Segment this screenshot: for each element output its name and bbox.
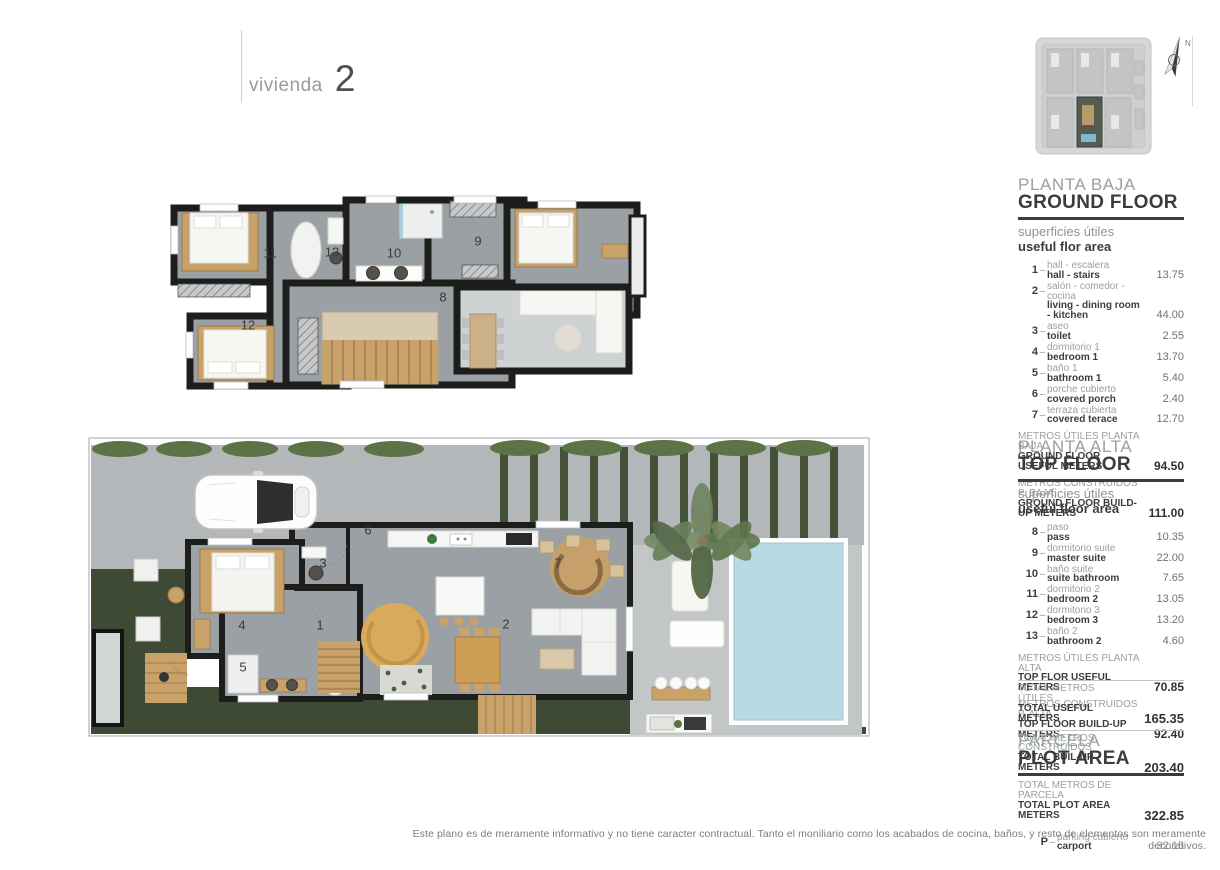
row-dash: – xyxy=(1038,523,1047,543)
balcony xyxy=(630,216,645,296)
row-label-en: bedroom 1 xyxy=(1047,353,1142,363)
section-title-en: PLOT AREA xyxy=(1018,749,1184,769)
room-label-4: 4 xyxy=(238,618,245,633)
room-number: 6 xyxy=(1018,385,1038,405)
total-label-es: TOTAL METROS ÚTILES xyxy=(1018,684,1132,704)
room-number: 13 xyxy=(1018,627,1038,647)
pool xyxy=(729,538,848,725)
row-labels: aseo toilet xyxy=(1047,322,1142,342)
room-label-7: 7 xyxy=(554,556,561,571)
page-title: vivienda 2 xyxy=(249,58,355,100)
area-row: 4 – dormitorio 1 bedroom 1 13.70 xyxy=(1018,343,1184,363)
site-plan-thumbnail xyxy=(1035,37,1152,155)
row-label-en: bedroom 2 xyxy=(1047,595,1142,605)
row-labels: dormitorio 3 bedroom 3 xyxy=(1047,606,1142,626)
row-value: 2.40 xyxy=(1142,394,1184,405)
section-title-es: PLANTA ALTA xyxy=(1018,438,1184,455)
vanity-room10 xyxy=(356,266,422,281)
page-title-label: vivienda xyxy=(249,75,323,97)
row-label-en: bedroom 3 xyxy=(1047,616,1142,626)
rear-deck xyxy=(478,695,536,734)
outdoor-chairs xyxy=(652,677,710,700)
row-dash: – xyxy=(1038,322,1047,342)
row-dash: – xyxy=(1038,406,1047,426)
subtotal-label-es: METROS ÚTILES PLANTA ALTA xyxy=(1018,654,1142,674)
row-labels: dormitorio 2 bedroom 2 xyxy=(1047,585,1142,605)
row-label-en: pass xyxy=(1047,533,1142,543)
section-rule xyxy=(1018,479,1184,482)
section-title-en: GROUND FLOOR xyxy=(1018,193,1184,213)
room-label-6: 6 xyxy=(364,523,371,538)
row-value: 13.05 xyxy=(1142,594,1184,605)
title-divider-line xyxy=(241,30,242,103)
room-number: 10 xyxy=(1018,565,1038,585)
page-title-number: 2 xyxy=(335,58,356,100)
area-row: 6 – porche cubierto covered porch 2.40 xyxy=(1018,385,1184,405)
dining-table xyxy=(455,628,500,692)
row-label-en: hall - stairs xyxy=(1047,271,1142,281)
area-row: 3 – aseo toilet 2.55 xyxy=(1018,322,1184,342)
row-label-es: salón - comedor - cocina xyxy=(1047,282,1142,302)
total-label-en: TOTAL USEFUL METERS xyxy=(1018,704,1132,724)
room-label-9: 9 xyxy=(474,234,481,249)
row-value: 12.70 xyxy=(1142,414,1184,425)
room-label-10: 10 xyxy=(387,246,401,261)
row-value: 7.65 xyxy=(1142,573,1184,584)
room-label-5: 5 xyxy=(239,660,246,675)
room-number: 4 xyxy=(1018,343,1038,363)
room-label-1: 1 xyxy=(316,618,323,633)
total-value: 322.85 xyxy=(1142,810,1184,821)
disclaimer-text: Este plano es de meramente informativo y… xyxy=(400,828,1206,852)
row-dash: – xyxy=(1038,565,1047,585)
outdoor-kitchen xyxy=(646,714,712,733)
top-rows: 8 – paso pass 10.35 9 – dormitorio suite… xyxy=(1018,523,1184,647)
total-value: 165.35 xyxy=(1132,713,1184,724)
car xyxy=(195,471,317,533)
bed-room12 xyxy=(198,326,274,380)
room-label-13: 13 xyxy=(325,245,339,260)
row-label-en: master suite xyxy=(1047,554,1142,564)
total-labels: TOTAL METROS ÚTILES TOTAL USEFUL METERS xyxy=(1018,684,1132,724)
area-row: 10 – baño suite suite bathroom 7.65 xyxy=(1018,565,1184,585)
row-labels: dormitorio 1 bedroom 1 xyxy=(1047,343,1142,363)
bed-room11 xyxy=(182,213,258,271)
row-value: 2.55 xyxy=(1142,331,1184,342)
ground-rows: 1 – hall - escalera hall - stairs 13.75 … xyxy=(1018,261,1184,425)
row-value: 13.20 xyxy=(1142,615,1184,626)
row-labels: hall - escalera hall - stairs xyxy=(1047,261,1142,281)
row-value: 13.70 xyxy=(1142,352,1184,363)
row-dash: – xyxy=(1038,385,1047,405)
room-number: 7 xyxy=(1018,406,1038,426)
total-row: TOTAL METROS DE PARCELA TOTAL PLOT AREA … xyxy=(1018,781,1184,821)
top-floor-plan: 11 13 10 9 8 12 xyxy=(170,186,650,398)
row-label-en: covered porch xyxy=(1047,395,1142,405)
row-dash: – xyxy=(1038,261,1047,281)
row-labels: salón - comedor - cocina living - dining… xyxy=(1047,282,1142,322)
row-value: 44.00 xyxy=(1142,310,1184,321)
room-number: 12 xyxy=(1018,606,1038,626)
compass-north-label: N xyxy=(1185,39,1191,48)
room-number: 9 xyxy=(1018,544,1038,564)
row-label-en: bathroom 1 xyxy=(1047,374,1142,384)
area-row: 1 – hall - escalera hall - stairs 13.75 xyxy=(1018,261,1184,281)
ground-stairs xyxy=(318,641,360,693)
section-subtitle-en: useful flor area xyxy=(1018,239,1184,254)
entry-deck xyxy=(145,653,187,703)
section-title-en: TOP FLOOR xyxy=(1018,455,1184,475)
section-title-es: PARCELA xyxy=(1018,732,1184,749)
room-number: 3 xyxy=(1018,322,1038,342)
row-label-en: bathroom 2 xyxy=(1047,637,1142,647)
row-label-en: toilet xyxy=(1047,332,1142,342)
row-value: 13.75 xyxy=(1142,270,1184,281)
round-rug xyxy=(361,603,429,671)
row-label-en: living - dining room - kitchen xyxy=(1047,301,1142,321)
section-rule xyxy=(1018,217,1184,220)
shower-room10 xyxy=(400,204,442,238)
top-floor-plan-drawing xyxy=(170,186,650,398)
section-subtitle-es: superficies útiles xyxy=(1018,225,1184,239)
area-row: 9 – dormitorio suite master suite 22.00 xyxy=(1018,544,1184,564)
room-label-11: 11 xyxy=(263,246,277,261)
area-row: 11 – dormitorio 2 bedroom 2 13.05 xyxy=(1018,585,1184,605)
room-label-8: 8 xyxy=(439,290,446,305)
stairs xyxy=(322,312,438,384)
row-dash: – xyxy=(1038,585,1047,605)
ground-floor-plan-drawing xyxy=(88,437,870,737)
row-dash: – xyxy=(1038,627,1047,647)
room-number: 5 xyxy=(1018,364,1038,384)
room-number: 11 xyxy=(1018,585,1038,605)
area-row: 8 – paso pass 10.35 xyxy=(1018,523,1184,543)
row-value: 10.35 xyxy=(1142,532,1184,543)
side-storage xyxy=(94,631,122,725)
room-label-3: 3 xyxy=(319,556,326,571)
row-dash: – xyxy=(1038,343,1047,363)
room-number: 2 xyxy=(1018,282,1038,322)
row-labels: paso pass xyxy=(1047,523,1142,543)
ground-floor-plan: 1 2 3 4 5 6 7 xyxy=(88,437,870,737)
row-dash: – xyxy=(1038,544,1047,564)
total-label-es: TOTAL METROS DE PARCELA xyxy=(1018,781,1142,801)
area-row: 5 – baño 1 bathroom 1 5.40 xyxy=(1018,364,1184,384)
gravel-patch xyxy=(380,665,432,695)
row-dash: – xyxy=(1038,282,1047,322)
room-number: 1 xyxy=(1018,261,1038,281)
site-highlighted-unit xyxy=(1077,97,1102,147)
room-label-2: 2 xyxy=(502,617,509,632)
area-row: 12 – dormitorio 3 bedroom 3 13.20 xyxy=(1018,606,1184,626)
area-row: 2 – salón - comedor - cocina living - di… xyxy=(1018,282,1184,322)
row-dash: – xyxy=(1038,364,1047,384)
row-labels: baño 1 bathroom 1 xyxy=(1047,364,1142,384)
total-row: TOTAL METROS ÚTILES TOTAL USEFUL METERS … xyxy=(1018,680,1184,724)
row-label-en: suite bathroom xyxy=(1047,574,1142,584)
total-label-en: TOTAL PLOT AREA METERS xyxy=(1018,801,1142,821)
row-dash: – xyxy=(1038,606,1047,626)
row-labels: porche cubierto covered porch xyxy=(1047,385,1142,405)
row-label-en: covered terace xyxy=(1047,415,1142,425)
room-number: 8 xyxy=(1018,523,1038,543)
parcela-totals: TOTAL METROS DE PARCELA TOTAL PLOT AREA … xyxy=(1018,781,1184,821)
area-row: 13 – baño 2 bathroom 2 4.60 xyxy=(1018,627,1184,647)
header-divider-line xyxy=(1192,36,1193,106)
row-labels: baño suite suite bathroom xyxy=(1047,565,1142,585)
section-subtitle-es: superficies útiles xyxy=(1018,487,1184,501)
row-value: 4.60 xyxy=(1142,636,1184,647)
area-row: 7 – terraza cubierta covered terace 12.7… xyxy=(1018,406,1184,426)
room-label-12: 12 xyxy=(241,318,255,333)
row-labels: dormitorio suite master suite xyxy=(1047,544,1142,564)
section-rule xyxy=(1018,773,1184,776)
section-title-es: PLANTA BAJA xyxy=(1018,176,1184,193)
row-value: 5.40 xyxy=(1142,373,1184,384)
row-labels: baño 2 bathroom 2 xyxy=(1047,627,1142,647)
row-value: 22.00 xyxy=(1142,553,1184,564)
row-labels: terraza cubierta covered terace xyxy=(1047,406,1142,426)
total-labels: TOTAL METROS DE PARCELA TOTAL PLOT AREA … xyxy=(1018,781,1142,821)
section-subtitle-en: useful floor area xyxy=(1018,501,1184,516)
